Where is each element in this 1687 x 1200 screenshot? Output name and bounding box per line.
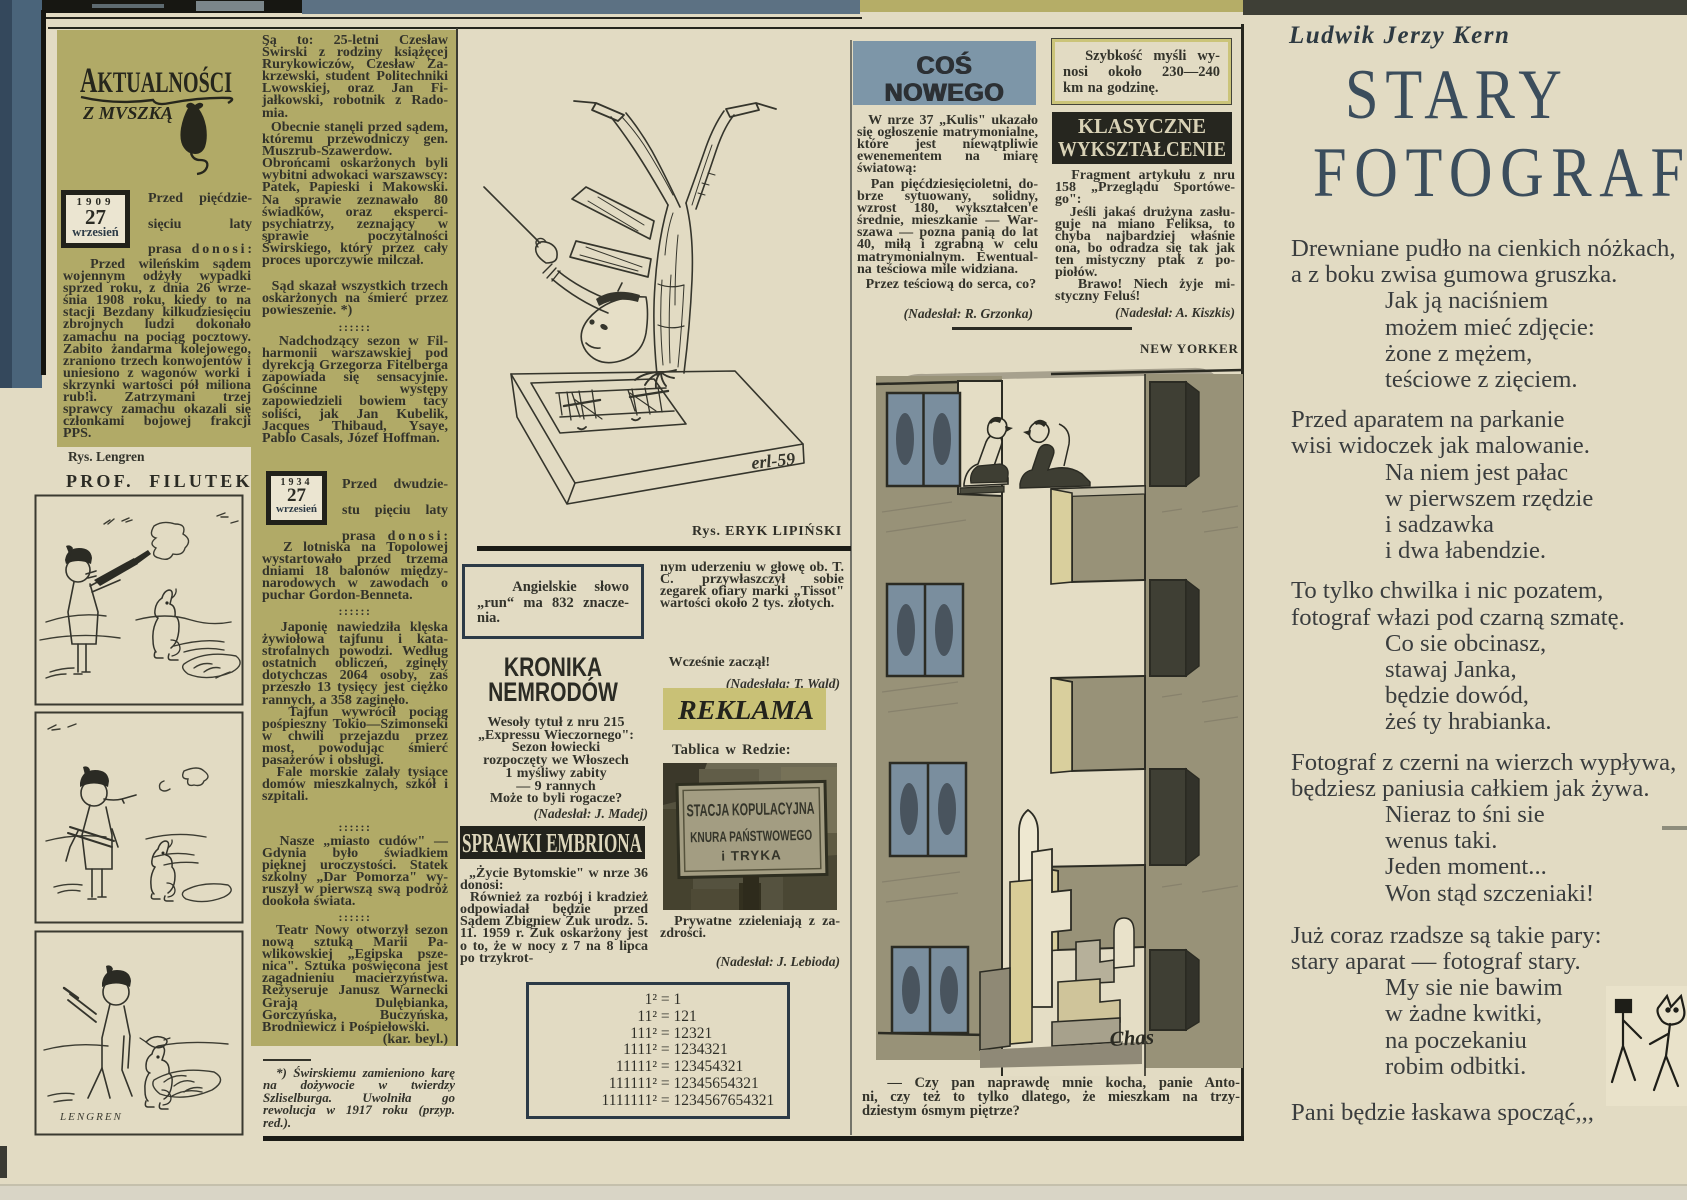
svg-text:Z MVSZKĄ: Z MVSZKĄ bbox=[82, 103, 173, 123]
svg-text:erl-59: erl-59 bbox=[750, 448, 796, 472]
svg-text:AKTUALNOŚCI: AKTUALNOŚCI bbox=[80, 60, 232, 100]
svg-text:SPRAWKI EMBRIONA: SPRAWKI EMBRIONA bbox=[462, 828, 642, 858]
svg-text:KNURA PAŃSTWOWEGO: KNURA PAŃSTWOWEGO bbox=[690, 827, 812, 847]
svg-text:KLASYCZNE: KLASYCZNE bbox=[1078, 114, 1206, 138]
svg-text:STACJA KOPULACYJNA: STACJA KOPULACYJNA bbox=[686, 799, 814, 821]
svg-text:Chas: Chas bbox=[1109, 1025, 1155, 1051]
svg-text:i TRYKA: i TRYKA bbox=[721, 847, 782, 863]
svg-text:WYKSZTAŁCENIE: WYKSZTAŁCENIE bbox=[1058, 137, 1226, 161]
svg-text:REKLAMA: REKLAMA bbox=[677, 695, 814, 725]
svg-text:LENGREN: LENGREN bbox=[59, 1111, 123, 1123]
